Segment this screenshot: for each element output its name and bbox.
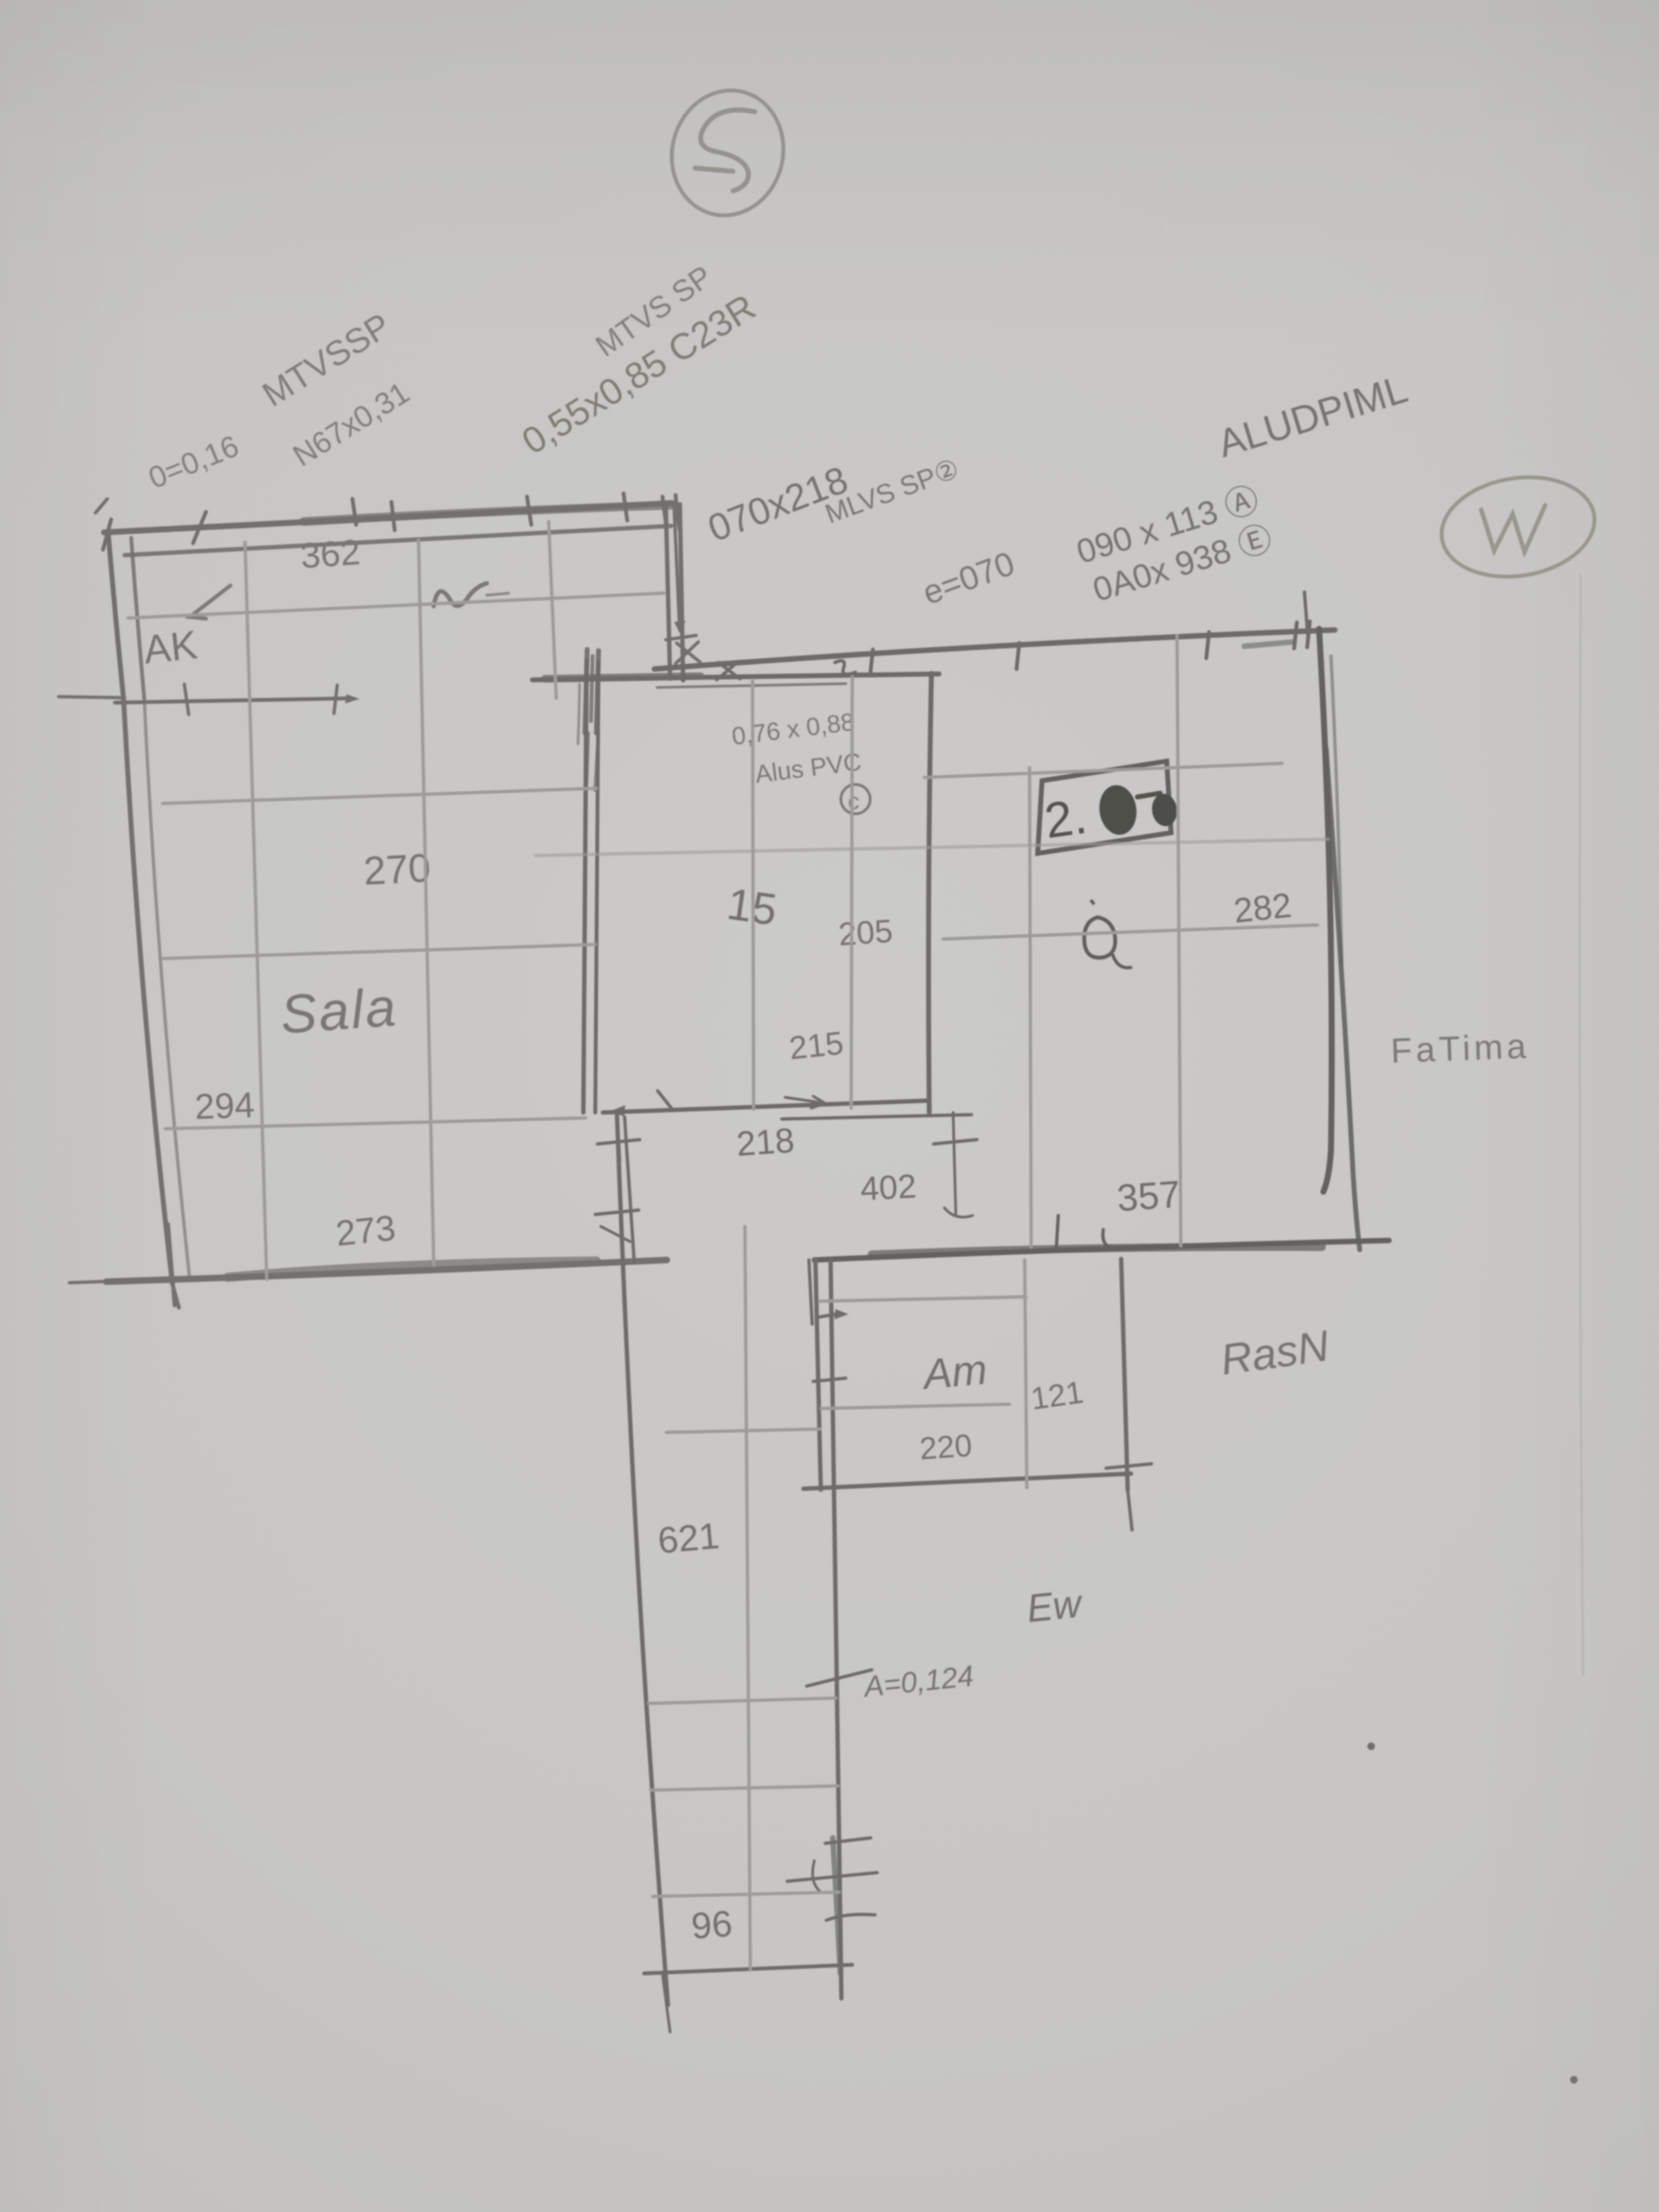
svg-text:Alus PVC: Alus PVC xyxy=(754,747,863,788)
svg-text:273: 273 xyxy=(334,1207,397,1253)
svg-text:270: 270 xyxy=(362,845,432,893)
svg-text:282: 282 xyxy=(1232,885,1294,930)
svg-text:Sala: Sala xyxy=(279,976,400,1045)
svg-text:Ew: Ew xyxy=(1025,1582,1085,1631)
svg-text:Am: Am xyxy=(919,1345,989,1398)
svg-text:2.: 2. xyxy=(1041,788,1090,849)
svg-text:220: 220 xyxy=(918,1427,973,1467)
svg-text:402: 402 xyxy=(859,1168,917,1208)
svg-text:0,76 x 0,88: 0,76 x 0,88 xyxy=(730,708,856,750)
svg-text:ALUDPIML: ALUDPIML xyxy=(1213,368,1412,466)
svg-text:121: 121 xyxy=(1028,1374,1085,1417)
svg-text:362: 362 xyxy=(299,531,362,576)
svg-text:621: 621 xyxy=(656,1515,721,1561)
svg-text:357: 357 xyxy=(1116,1173,1182,1219)
svg-text:AK: AK xyxy=(142,622,200,672)
svg-text:A=0,124: A=0,124 xyxy=(861,1660,975,1703)
svg-text:FaTima: FaTima xyxy=(1390,1026,1531,1070)
svg-text:215: 215 xyxy=(787,1025,845,1066)
svg-text:205: 205 xyxy=(837,912,894,953)
svg-text:RasN: RasN xyxy=(1218,1321,1332,1384)
svg-text:218: 218 xyxy=(735,1121,796,1163)
svg-text:0=0,16: 0=0,16 xyxy=(144,428,243,495)
svg-text:e=070: e=070 xyxy=(918,545,1019,612)
svg-text:96: 96 xyxy=(690,1903,734,1947)
svg-text:294: 294 xyxy=(194,1084,255,1127)
svg-text:c: c xyxy=(848,788,859,814)
